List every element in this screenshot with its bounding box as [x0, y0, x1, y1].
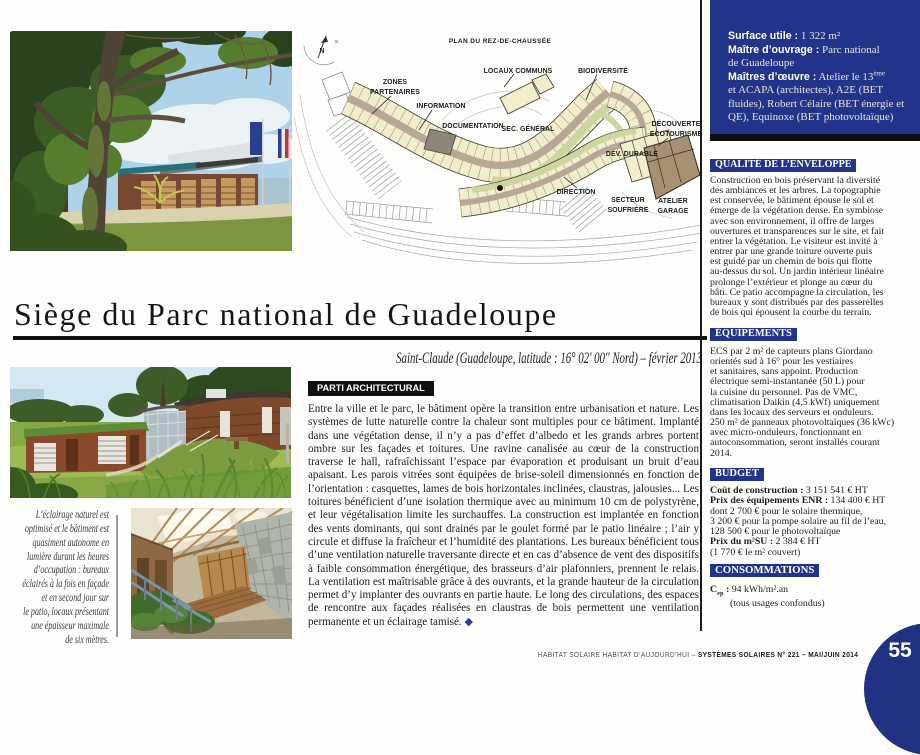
svg-text:DÉV. DURABLE: DÉV. DURABLE — [606, 149, 659, 158]
svg-text:SOUFRIÈRE: SOUFRIÈRE — [607, 205, 648, 214]
svg-text:PLAN DU REZ-DE-CHAUSSÉE: PLAN DU REZ-DE-CHAUSSÉE — [449, 36, 552, 45]
svg-text:SEC. GÉNÉRAL: SEC. GÉNÉRAL — [502, 124, 555, 133]
svg-text:ECOTOURISME: ECOTOURISME — [650, 131, 703, 138]
svg-text:N: N — [319, 48, 324, 55]
svg-text:ZONES: ZONES — [383, 79, 408, 86]
svg-text:PARTENAIRES: PARTENAIRES — [370, 89, 420, 96]
svg-text:ATELIER: ATELIER — [658, 198, 688, 205]
svg-text:DIRECTION: DIRECTION — [557, 189, 596, 196]
svg-text:GARAGE: GARAGE — [658, 208, 689, 215]
svg-text:DOCUMENTATION: DOCUMENTATION — [442, 123, 504, 130]
svg-text:LOCAUX COMMUNS: LOCAUX COMMUNS — [484, 68, 553, 75]
svg-text:BIODIVERSITÉ: BIODIVERSITÉ — [578, 66, 628, 75]
svg-text:SECTEUR: SECTEUR — [611, 197, 645, 204]
svg-text:INFORMATION: INFORMATION — [416, 103, 465, 110]
svg-text:DÉCOUVERTE: DÉCOUVERTE — [652, 119, 701, 128]
